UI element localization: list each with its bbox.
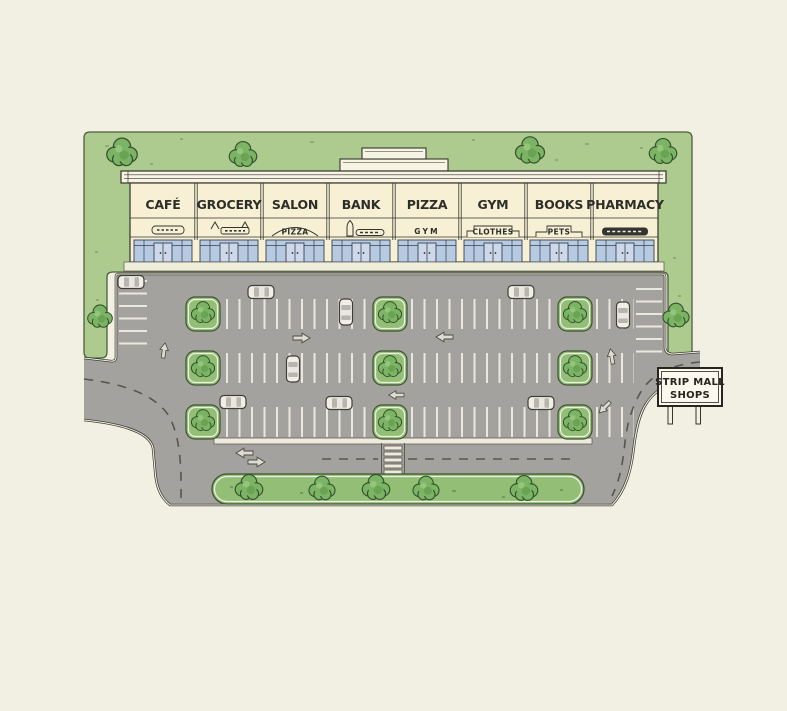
store-name-cafe: CAFÉ: [145, 197, 180, 212]
sidewalk: [124, 262, 664, 271]
sign-post: [696, 406, 701, 424]
site-plan-svg: CAFÉ GROCERY SALON BANK PIZZA GYM BOOKS …: [0, 0, 787, 711]
sub-label-gym-store: CLOTHES: [472, 228, 513, 237]
storefront: [332, 240, 390, 262]
sign-post: [668, 406, 673, 424]
sub-label-pizza-store: GYM: [414, 227, 440, 236]
storefront: [464, 240, 522, 262]
cornice: [121, 171, 666, 183]
sign-line-1: STRIP MALL: [655, 377, 725, 388]
storefront: [200, 240, 258, 262]
dark-bar-sign: [602, 228, 648, 236]
store-name-grocery: GROCERY: [197, 197, 263, 212]
sign-line-2: SHOPS: [670, 390, 710, 401]
sub-label-books-store: PETS: [548, 228, 571, 237]
store-name-gym: GYM: [478, 197, 509, 212]
store-name-books: BOOKS: [535, 197, 584, 212]
parapet-lower: [340, 159, 448, 171]
storefront: [596, 240, 654, 262]
store-name-salon: SALON: [272, 197, 318, 212]
site-plan-illustration: CAFÉ GROCERY SALON BANK PIZZA GYM BOOKS …: [0, 0, 787, 711]
storefront: [134, 240, 192, 262]
storefront: [530, 240, 588, 262]
landscape-strip: [212, 474, 584, 504]
stepped-tab-sign: CLOTHES: [467, 226, 519, 237]
storefront: [266, 240, 324, 262]
storefront: [398, 240, 456, 262]
crosswalk: [382, 443, 405, 476]
sub-label-salon: PIZZA: [282, 228, 309, 237]
bottle-icon: [347, 221, 353, 237]
store-name-pharmacy: PHARMACY: [586, 197, 665, 212]
store-name-pizza: PIZZA: [407, 197, 448, 212]
store-name-bank: BANK: [342, 197, 382, 212]
parapet-upper: [362, 148, 426, 159]
curb-strip: [214, 438, 592, 444]
